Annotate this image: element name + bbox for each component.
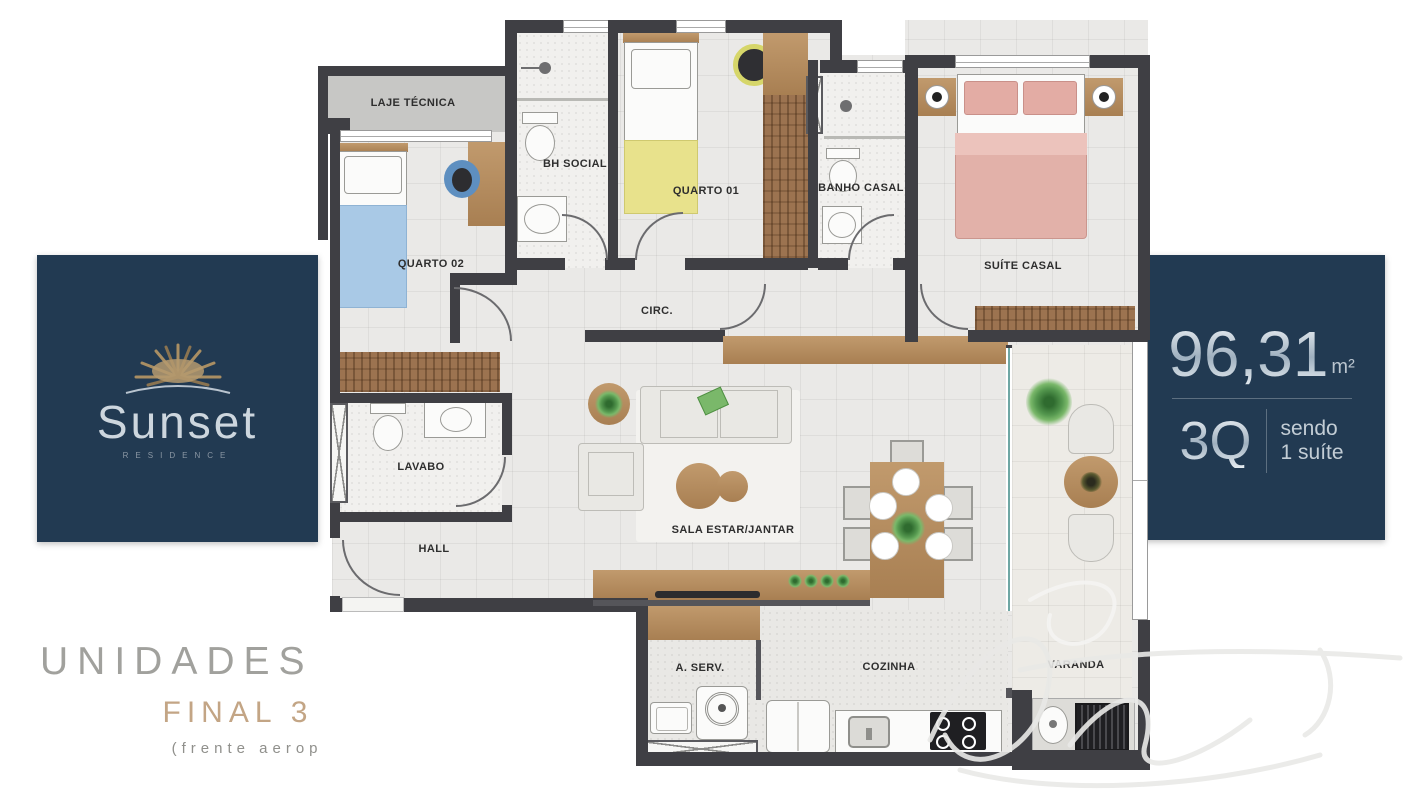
laje-opening [340, 130, 492, 142]
wall [808, 60, 818, 268]
desk-chair-seat [452, 168, 472, 192]
exterior [840, 10, 905, 55]
label-suite-casal: SUÍTE CASAL [984, 260, 1062, 272]
wardrobe-suite [975, 306, 1135, 332]
wall [332, 393, 512, 403]
wall [905, 330, 918, 342]
toilet-tank [826, 148, 860, 159]
pillow [344, 156, 402, 194]
blanket-blue [339, 205, 407, 308]
balcony-plant-icon [1026, 378, 1072, 426]
shower-head-icon [840, 100, 852, 112]
place-setting [892, 468, 920, 496]
wall [608, 20, 618, 268]
dining-chair [843, 527, 873, 561]
table-plant-icon [891, 511, 925, 545]
wall [517, 258, 565, 270]
label-laje-tecnica: LAJE TÉCNICA [371, 97, 456, 109]
wall [818, 258, 848, 270]
wall [502, 393, 512, 455]
wall [636, 598, 648, 766]
label-quarto-02: QUARTO 02 [398, 258, 464, 270]
wall [318, 66, 328, 240]
pillow [631, 49, 691, 89]
sink-basin [440, 407, 472, 432]
label-quarto-01: QUARTO 01 [673, 185, 739, 197]
duct-shaft [330, 403, 348, 503]
shower-divider [517, 98, 608, 101]
sofa-cushion [720, 390, 778, 438]
place-setting [869, 492, 897, 520]
toilet-bowl [373, 415, 403, 451]
counter-plant-icon [820, 574, 834, 588]
wall [893, 258, 918, 270]
sink-tap [866, 728, 872, 740]
lamp-center [1099, 92, 1109, 102]
window [676, 20, 726, 33]
wall [505, 20, 840, 33]
wall [332, 512, 512, 522]
label-bh-social: BH SOCIAL [543, 158, 607, 170]
toilet-bowl [525, 125, 555, 161]
wall [502, 505, 512, 522]
pillow-pink [1023, 81, 1077, 115]
wall [605, 258, 635, 270]
sala-cabinet [723, 336, 1008, 364]
lamp-center [932, 92, 942, 102]
sink-basin [828, 212, 856, 238]
counter-plant-icon [788, 574, 802, 588]
wall [505, 20, 517, 285]
wall [585, 330, 725, 342]
fridge-divider [797, 702, 799, 751]
signature-watermark [900, 560, 1418, 800]
kitchen-cabinet [648, 605, 760, 640]
wall-partition [593, 600, 870, 606]
coffee-table-small [717, 471, 748, 502]
exterior [318, 612, 636, 772]
blanket-yellow [624, 140, 698, 214]
window [563, 20, 613, 33]
balcony-chair [1068, 404, 1114, 454]
label-lavabo: LAVABO [397, 461, 444, 473]
floor-plan: LAJE TÉCNICA QUARTO 02 BH SOCIAL QUARTO … [0, 0, 1418, 800]
pillow-pink [964, 81, 1018, 115]
label-circ: CIRC. [641, 305, 673, 317]
balcony-chair [1068, 514, 1114, 562]
wall-partition [756, 640, 761, 700]
wall [685, 258, 808, 270]
blanket-fold [955, 133, 1087, 155]
wall [318, 66, 508, 76]
shower-arm [521, 67, 541, 69]
label-sala: SALA ESTAR/JANTAR [672, 524, 795, 536]
window [857, 60, 903, 73]
balcony-table-plant [1080, 472, 1102, 492]
wall [1138, 55, 1150, 340]
counter-plant-icon [836, 574, 850, 588]
place-setting [925, 532, 953, 560]
coffee-table-large [676, 463, 722, 509]
wall [450, 273, 517, 285]
wall [968, 330, 1148, 342]
armchair-seat [588, 452, 634, 496]
wardrobe-top [763, 33, 808, 95]
toilet-tank [370, 403, 406, 414]
exterior [318, 10, 505, 66]
washer-dial [718, 704, 726, 712]
label-a-serv: A. SERV. [675, 662, 724, 674]
wall [905, 55, 918, 268]
place-setting [925, 494, 953, 522]
sink-basin [524, 204, 560, 234]
shower-divider [824, 136, 905, 139]
entrance-threshold [342, 597, 404, 612]
wardrobe-quarto02 [337, 352, 500, 392]
plant-icon [595, 390, 623, 418]
label-banho-casal: BANHO CASAL [818, 182, 904, 194]
counter-plant-icon [804, 574, 818, 588]
laundry-tank-basin [656, 707, 688, 731]
wardrobe-quarto01 [763, 95, 808, 258]
window [955, 55, 1090, 68]
label-hall: HALL [419, 543, 450, 555]
toilet-tank [522, 112, 558, 124]
counter-inset [655, 591, 760, 598]
